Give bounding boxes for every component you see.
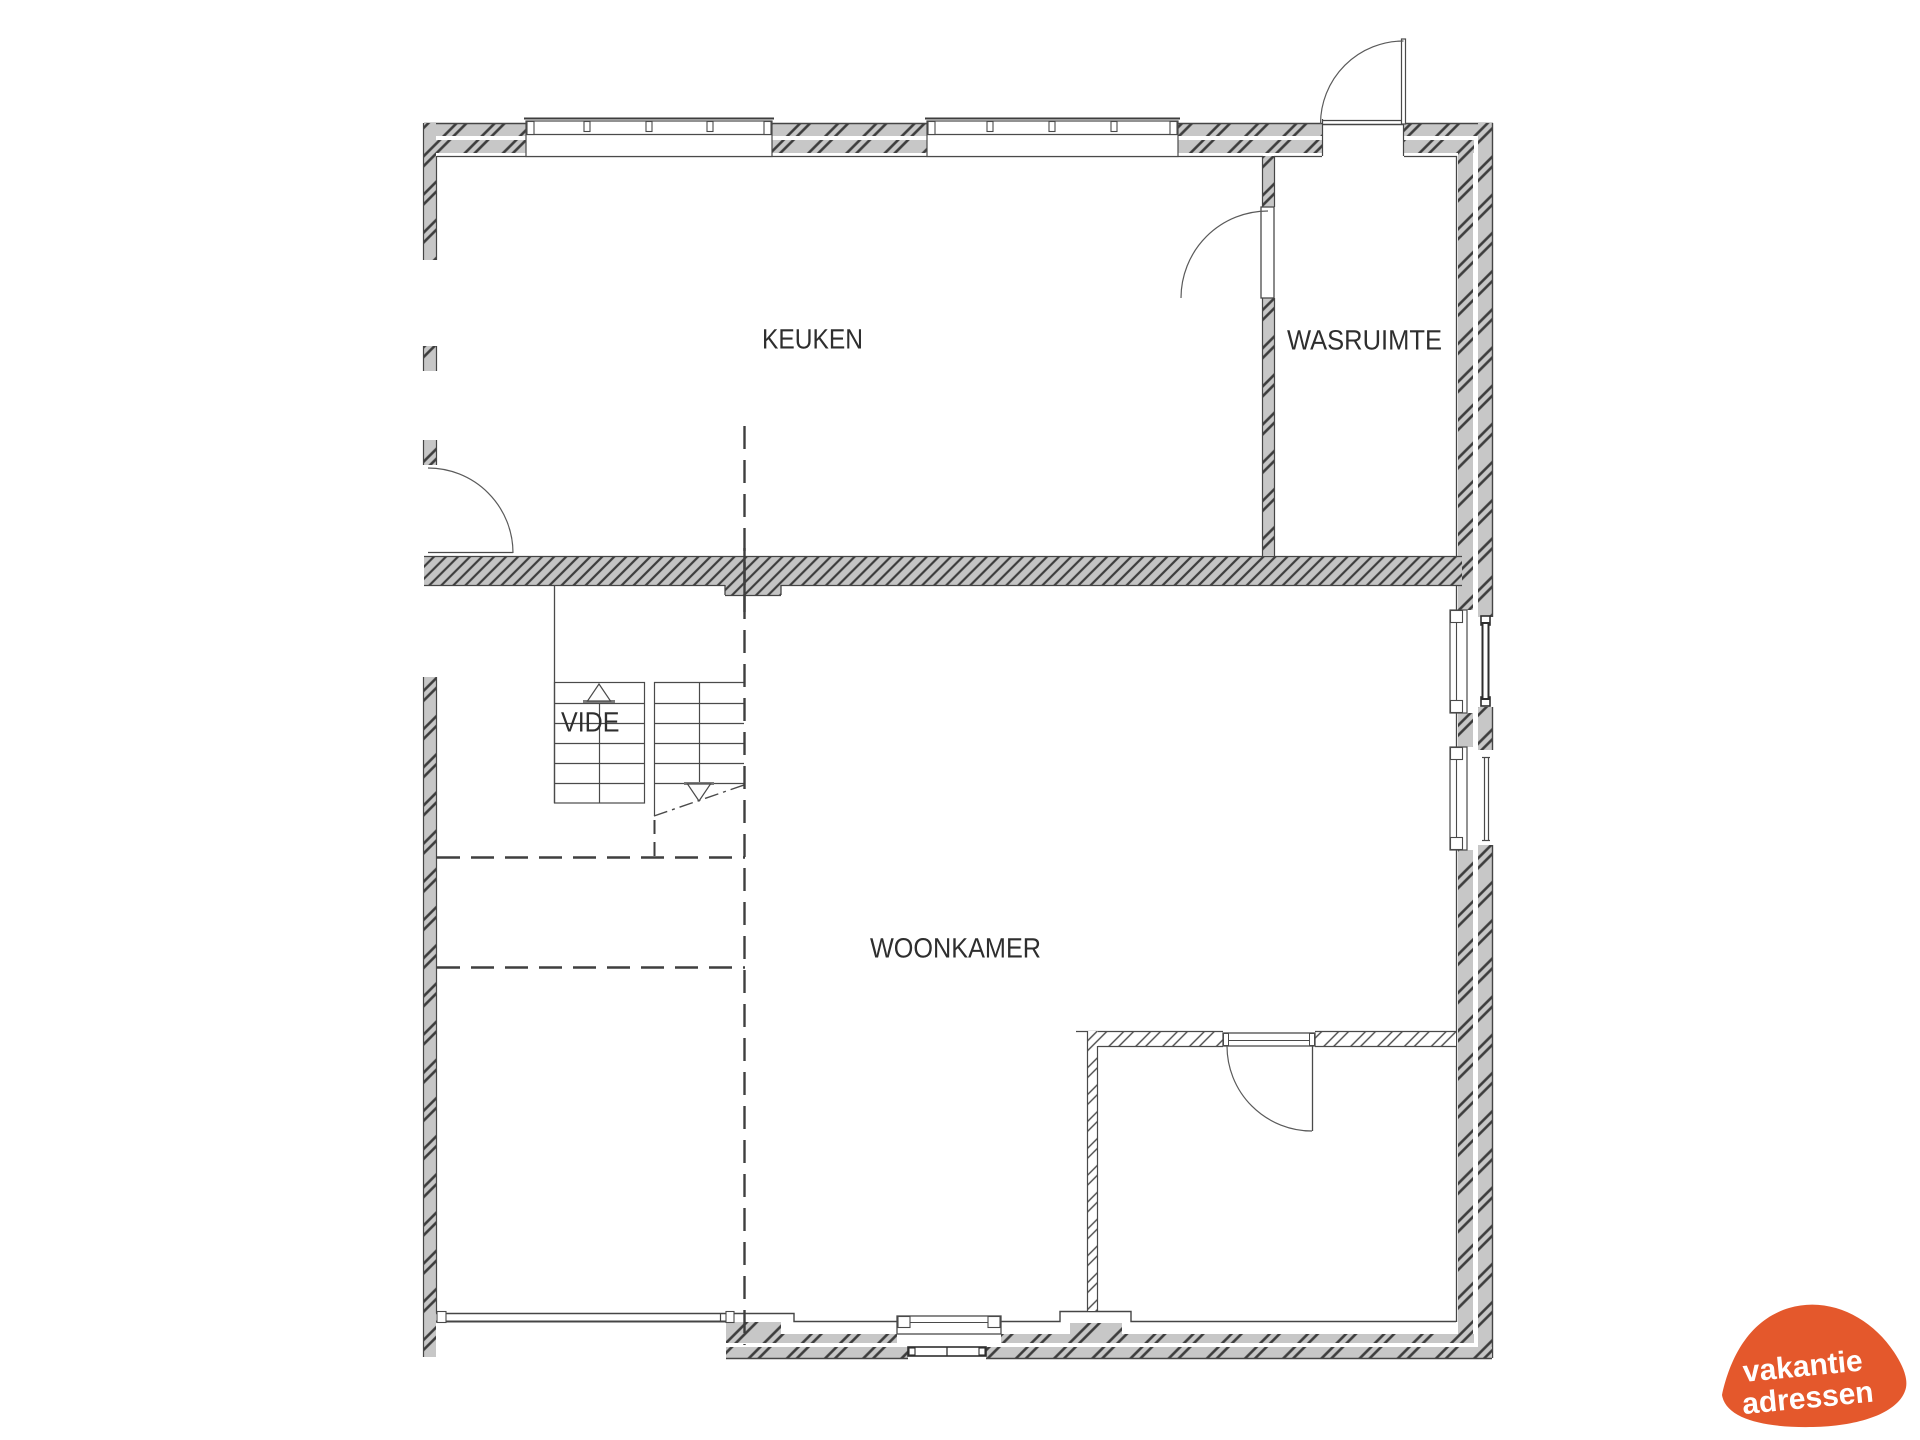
svg-text:KEUKEN: KEUKEN [762, 324, 863, 355]
svg-text:VIDE: VIDE [561, 707, 620, 738]
svg-text:WASRUIMTE: WASRUIMTE [1287, 325, 1442, 356]
svg-text:WOONKAMER: WOONKAMER [870, 933, 1041, 964]
